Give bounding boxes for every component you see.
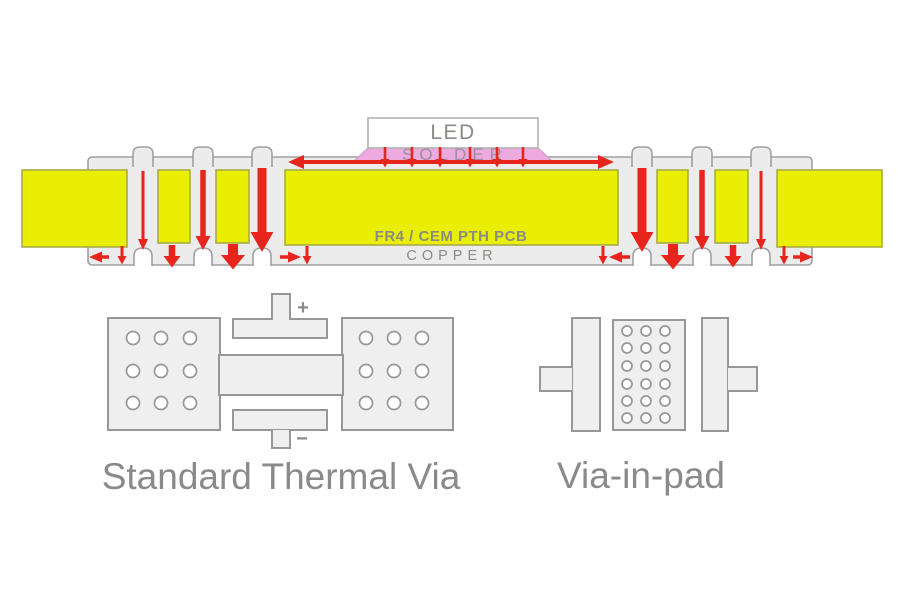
copper-block (216, 170, 249, 243)
via-hole (416, 397, 429, 410)
side-pad-left (572, 318, 600, 431)
via-hole (622, 326, 632, 336)
via-hole (416, 332, 429, 345)
via-hole (360, 365, 373, 378)
via-hole (660, 343, 670, 353)
via-hole (641, 379, 651, 389)
via-hole (155, 397, 168, 410)
via-hole (641, 396, 651, 406)
via-hole (660, 361, 670, 371)
via-hole (184, 332, 197, 345)
via-dome (193, 147, 213, 167)
via-hole (622, 361, 632, 371)
led-label: LED (430, 121, 475, 144)
via-hole-grid-right (360, 332, 429, 410)
via-hole (184, 365, 197, 378)
copper-label: COPPER (406, 248, 497, 264)
negative-terminal-stem (272, 430, 290, 448)
via-hole (641, 413, 651, 423)
via-hole (155, 365, 168, 378)
pcb-cross-section-diagram: LED SOLDER FR4 / CEM PTH PCB COPPER (22, 118, 882, 270)
via-hole (127, 365, 140, 378)
via-hole (660, 396, 670, 406)
via-hole (622, 413, 632, 423)
via-dome (692, 147, 712, 167)
via-hole (388, 332, 401, 345)
via-exit-hole (752, 248, 770, 266)
copper-block (158, 170, 190, 243)
via-hole (155, 332, 168, 345)
copper-pad-left (22, 170, 127, 247)
via-hole (184, 397, 197, 410)
via-exit-hole (693, 248, 711, 266)
via-exit-hole (134, 248, 152, 266)
via-hole (660, 379, 670, 389)
via-hole-grid-left (127, 332, 197, 410)
pcb-thermal-via-figure: LED SOLDER FR4 / CEM PTH PCB COPPER (0, 0, 900, 600)
diagram-canvas: LED SOLDER FR4 / CEM PTH PCB COPPER (0, 0, 900, 600)
plus-sign: + (297, 297, 309, 319)
positive-terminal-stem (272, 294, 290, 320)
via-dome (751, 147, 771, 167)
copper-block (715, 170, 748, 243)
via-dome (133, 147, 153, 167)
via-hole (360, 397, 373, 410)
via-hole (360, 332, 373, 345)
via-hole (641, 361, 651, 371)
via-hole (622, 379, 632, 389)
via-dome (252, 147, 272, 167)
fr4-label: FR4 / CEM PTH PCB (375, 228, 528, 245)
positive-terminal-pad (233, 319, 327, 338)
via-dome (632, 147, 652, 167)
negative-terminal-pad (233, 410, 327, 430)
via-in-pad-diagram: Via-in-pad (540, 318, 757, 496)
trace-stub-left (540, 367, 572, 391)
via-in-pad-caption: Via-in-pad (557, 455, 725, 496)
via-hole (388, 365, 401, 378)
via-hole (388, 397, 401, 410)
via-hole (641, 343, 651, 353)
via-hole (622, 343, 632, 353)
copper-block (657, 170, 688, 243)
minus-sign: − (296, 428, 308, 450)
copper-pad-right (777, 170, 882, 247)
standard-thermal-via-caption: Standard Thermal Via (102, 456, 461, 497)
center-trace-bar (219, 355, 343, 395)
standard-thermal-via-diagram: + − Standard Thermal Via (102, 294, 461, 497)
via-exit-hole (194, 248, 212, 266)
via-hole (660, 326, 670, 336)
via-hole (622, 396, 632, 406)
via-hole (641, 326, 651, 336)
via-hole (127, 397, 140, 410)
via-hole (127, 332, 140, 345)
via-hole (660, 413, 670, 423)
via-hole (416, 365, 429, 378)
trace-stub-right (728, 367, 757, 391)
side-pad-right (702, 318, 728, 431)
